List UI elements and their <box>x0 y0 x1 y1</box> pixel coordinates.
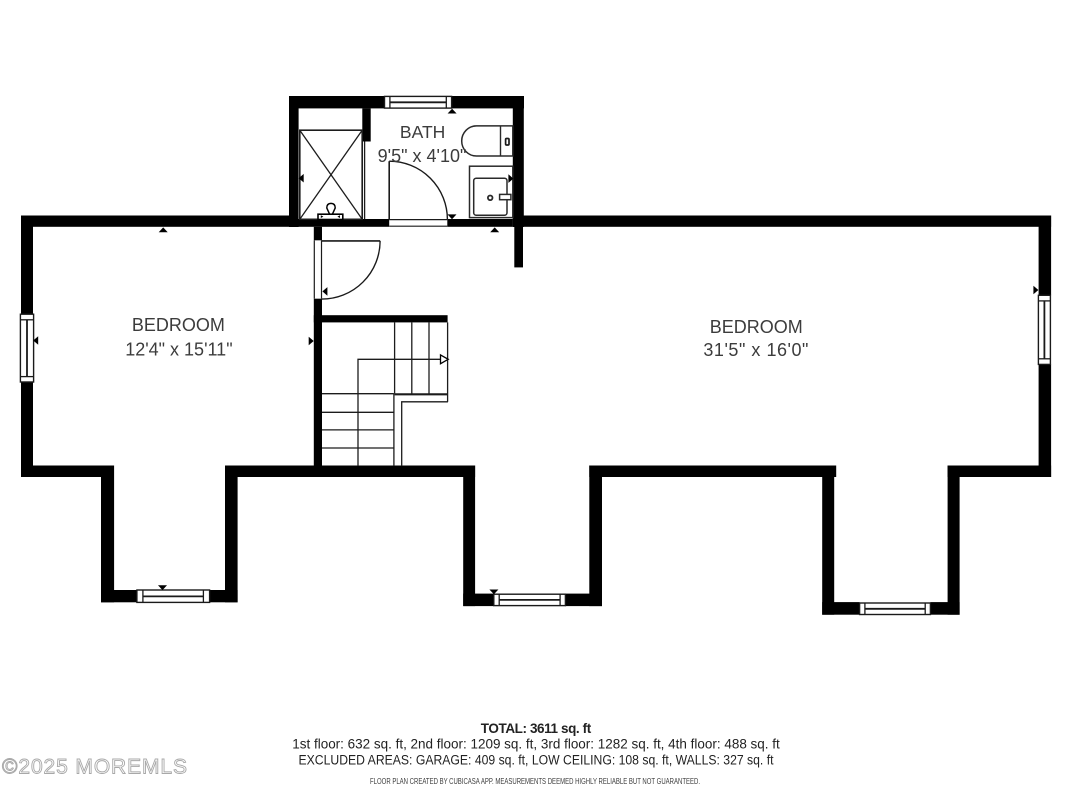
svg-text:EXCLUDED AREAS: GARAGE: 409 sq: EXCLUDED AREAS: GARAGE: 409 sq. ft, LOW … <box>299 752 774 767</box>
svg-text:BATH: BATH <box>400 122 445 142</box>
svg-text:©2025 MOREMLS: ©2025 MOREMLS <box>2 756 187 779</box>
svg-text:12'4" x 15'11": 12'4" x 15'11" <box>125 340 232 360</box>
svg-text:31'5" x 16'0": 31'5" x 16'0" <box>703 340 808 360</box>
svg-text:TOTAL: 3611 sq. ft: TOTAL: 3611 sq. ft <box>481 721 592 736</box>
svg-text:1st floor: 632 sq. ft, 2nd flo: 1st floor: 632 sq. ft, 2nd floor: 1209 s… <box>292 737 780 752</box>
svg-text:9'5" x 4'10": 9'5" x 4'10" <box>378 146 467 166</box>
svg-text:BEDROOM: BEDROOM <box>710 317 803 337</box>
svg-text:FLOOR PLAN CREATED BY CUBICASA: FLOOR PLAN CREATED BY CUBICASA APP. MEAS… <box>370 777 700 786</box>
svg-text:BEDROOM: BEDROOM <box>132 315 225 335</box>
